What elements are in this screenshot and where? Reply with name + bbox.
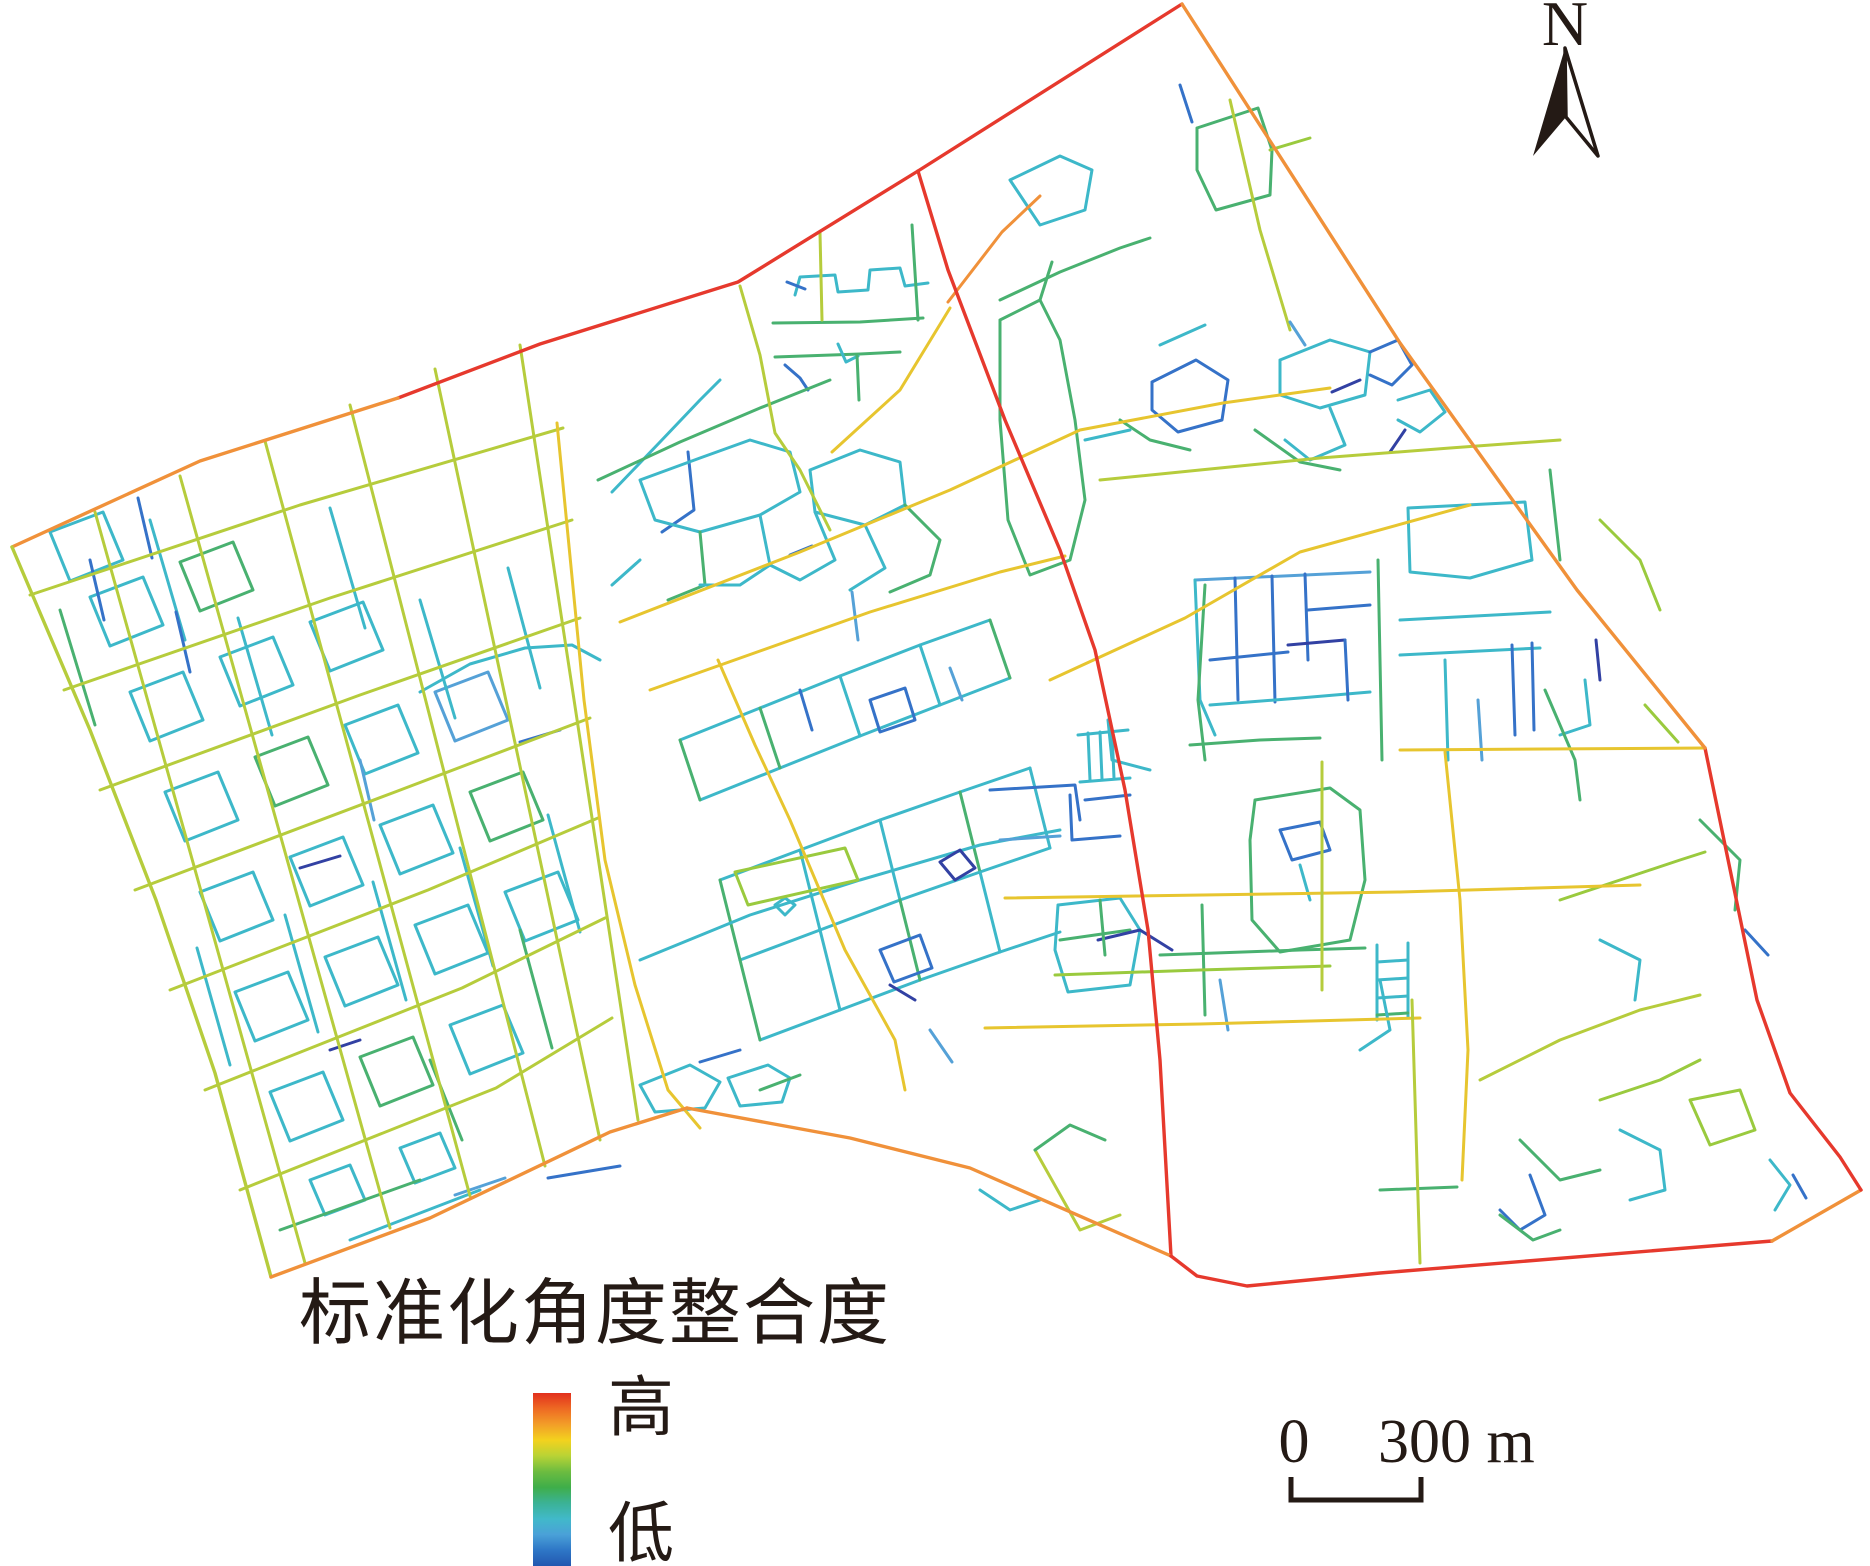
road-segment: [1088, 733, 1090, 780]
road-segment: [1370, 340, 1412, 385]
legend-gradient-bar: [533, 1393, 571, 1566]
road-segment: [1085, 795, 1130, 800]
road-segment: [180, 542, 253, 611]
road-segment: [1280, 340, 1370, 408]
road-segment: [640, 440, 800, 532]
road-segment: [1190, 738, 1320, 745]
road-segment: [700, 1050, 740, 1062]
road-segment: [1400, 612, 1550, 620]
road-segment: [773, 318, 923, 323]
scale-bar: 0 300 m: [1279, 1408, 1535, 1500]
road-segment: [1055, 898, 1140, 992]
road-segment: [400, 1133, 455, 1183]
road-segment: [948, 196, 1040, 302]
road-segment: [1520, 1140, 1600, 1180]
road-segment: [12, 547, 271, 1277]
road-segment: [360, 1037, 433, 1106]
road-segment: [1400, 748, 1705, 750]
road-segment: [1445, 660, 1448, 760]
road-segment: [1210, 652, 1288, 660]
road-segment: [1055, 966, 1330, 975]
road-segment: [548, 1166, 620, 1178]
road-segment: [980, 872, 1000, 952]
legend: 标准化角度整合度 高 低: [299, 1274, 891, 1566]
road-segment: [380, 805, 453, 874]
road-segment: [1160, 325, 1205, 345]
road-segment: [832, 308, 950, 452]
road-segment: [1377, 996, 1408, 998]
road-segment: [1332, 380, 1360, 392]
road-segment: [238, 618, 272, 735]
road-segment: [345, 705, 418, 774]
road-segment: [1035, 1125, 1105, 1150]
road-segment: [1120, 420, 1190, 450]
road-segment: [1210, 692, 1370, 705]
road-segment: [1620, 1130, 1665, 1200]
road-segment: [1078, 730, 1128, 735]
road-segment: [95, 512, 305, 1263]
road-segment: [1550, 470, 1560, 560]
road-segment: [197, 948, 230, 1065]
road-segment: [1378, 560, 1382, 760]
road-segment: [1171, 1241, 1772, 1286]
road-segment: [170, 818, 598, 990]
road-segment: [1600, 940, 1640, 1000]
road-segment: [1360, 980, 1390, 1050]
road-segment: [612, 560, 640, 585]
road-segment: [557, 423, 700, 1128]
road-segment: [820, 233, 822, 320]
road-segment: [235, 972, 308, 1041]
legend-title: 标准化角度整合度: [299, 1274, 891, 1354]
scale-zero-label: 0: [1279, 1408, 1310, 1476]
road-segment: [1408, 502, 1532, 578]
road-segment: [1596, 640, 1600, 680]
road-segment: [520, 345, 638, 1120]
road-segment: [255, 737, 328, 806]
road-segment: [1390, 430, 1405, 452]
road-segment: [1160, 948, 1365, 955]
road-segment: [1195, 572, 1370, 580]
road-segment: [850, 525, 885, 590]
road-segment: [220, 637, 293, 706]
road-segment: [1000, 238, 1150, 300]
road-segment: [1478, 700, 1482, 760]
road-segment: [700, 515, 770, 585]
north-arrow-icon: [1565, 48, 1598, 156]
road-segment: [1152, 360, 1228, 432]
road-segment: [1560, 680, 1590, 735]
road-segment: [1793, 1175, 1806, 1198]
road-segment: [795, 268, 928, 295]
road-segment: [990, 620, 1010, 678]
legend-high-label: 高: [608, 1372, 674, 1445]
road-segment: [930, 1030, 952, 1062]
road-segment: [950, 668, 962, 700]
scale-bar-line: [1291, 1477, 1421, 1500]
road-segment: [1180, 85, 1192, 122]
road-segment: [1377, 978, 1408, 980]
road-segment: [1705, 748, 1861, 1190]
road-segment: [398, 4, 1182, 398]
road-segment: [470, 772, 543, 841]
road-segment: [700, 678, 1010, 800]
road-segment: [310, 602, 383, 671]
road-segment: [1305, 574, 1308, 660]
road-segment: [680, 740, 700, 800]
north-arrow: N: [1533, 0, 1598, 156]
road-segment: [870, 688, 915, 732]
road-segment: [1000, 836, 1060, 840]
road-segment: [60, 610, 95, 725]
road-segment: [760, 932, 1060, 1040]
road-segment: [1412, 1000, 1420, 1263]
road-segment: [300, 856, 340, 868]
road-segment: [1290, 322, 1305, 345]
road-segment: [130, 672, 203, 741]
road-segment: [1100, 732, 1102, 779]
road-segment: [735, 848, 858, 905]
road-segment: [1308, 605, 1370, 610]
road-segment: [760, 1075, 800, 1090]
road-segment: [1600, 520, 1660, 610]
road-segment: [350, 405, 545, 1166]
road-segment: [857, 355, 859, 400]
road-segment: [1560, 852, 1705, 900]
road-segment: [880, 820, 900, 900]
road-segment: [728, 1065, 790, 1106]
road-segment: [785, 365, 808, 390]
scale-distance-label: 300 m: [1378, 1408, 1535, 1476]
road-segment: [662, 452, 694, 532]
road-segment: [880, 935, 932, 982]
road-segment: [1272, 576, 1275, 702]
road-segment: [1085, 430, 1130, 440]
road-segment: [1035, 1150, 1120, 1230]
road-segment: [890, 505, 940, 592]
road-segment: [271, 1108, 687, 1277]
road-segment: [800, 690, 812, 730]
road-segment: [1545, 690, 1580, 800]
road-segment: [1285, 408, 1345, 460]
road-segment: [1377, 960, 1408, 962]
road-segment: [270, 1072, 343, 1141]
road-segment: [720, 768, 1030, 880]
road-network: [12, 4, 1861, 1286]
road-segment: [918, 171, 1171, 1256]
road-segment: [205, 918, 605, 1090]
road-segment: [775, 352, 900, 357]
north-arrow-icon: [1533, 48, 1566, 156]
road-segment: [1600, 1060, 1700, 1100]
road-segment: [240, 1018, 612, 1190]
road-segment: [1512, 645, 1515, 735]
road-segment: [176, 612, 190, 672]
road-segment: [330, 1040, 360, 1050]
road-segment: [1235, 578, 1238, 700]
road-segment: [138, 498, 152, 558]
road-segment: [740, 960, 760, 1040]
road-segment: [1690, 1090, 1755, 1145]
road-segment: [1772, 1190, 1861, 1241]
road-segment: [1770, 1160, 1790, 1210]
road-segment: [985, 1018, 1420, 1028]
road-segment: [1400, 648, 1540, 655]
legend-low-label: 低: [608, 1498, 674, 1566]
map-figure: 标准化角度整合度 高 低 N 0 300 m: [0, 0, 1870, 1566]
road-segment: [820, 930, 840, 1010]
road-segment: [1377, 1013, 1408, 1015]
road-segment: [1230, 100, 1290, 330]
road-segment: [415, 905, 488, 974]
map-canvas: 标准化角度整合度 高 低 N 0 300 m: [0, 0, 1870, 1566]
road-segment: [508, 568, 540, 688]
road-segment: [325, 937, 398, 1006]
road-segment: [912, 225, 918, 320]
road-segment: [330, 508, 365, 628]
road-segment: [1532, 643, 1534, 730]
road-segment: [290, 837, 363, 906]
road-segment: [1250, 788, 1365, 952]
road-segment: [310, 1165, 365, 1215]
road-segment: [1100, 900, 1105, 955]
road-segment: [64, 520, 572, 690]
road-segment: [612, 380, 720, 492]
road-segment: [687, 1108, 1171, 1256]
road-segment: [435, 369, 600, 1140]
road-segment: [1480, 995, 1700, 1080]
road-segment: [920, 645, 940, 705]
road-segment: [840, 676, 860, 736]
road-segment: [1202, 905, 1205, 1015]
road-segment: [1288, 640, 1345, 645]
road-segment: [1445, 752, 1468, 1180]
road-segment: [1345, 640, 1348, 700]
